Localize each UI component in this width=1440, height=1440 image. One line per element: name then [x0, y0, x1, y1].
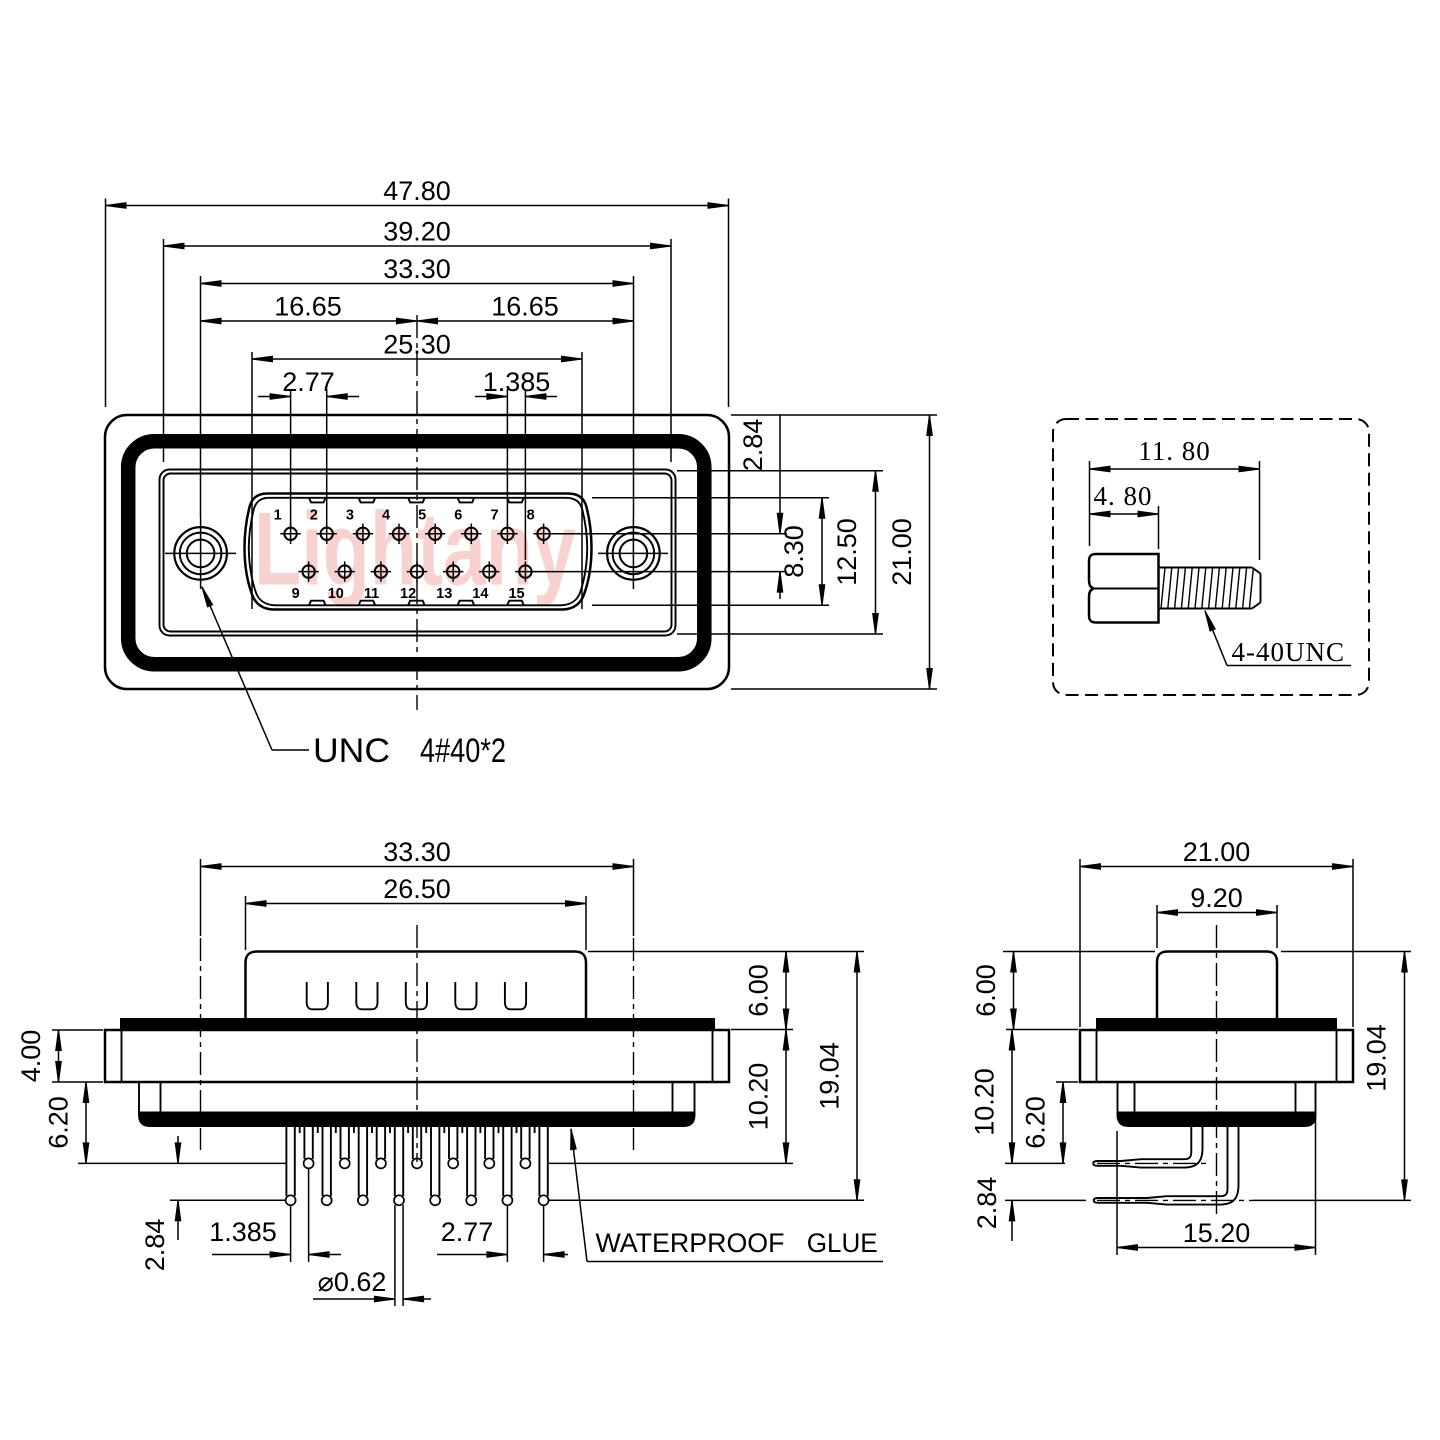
svg-text:26.50: 26.50 — [383, 874, 451, 904]
svg-text:12: 12 — [400, 586, 416, 602]
svg-text:6.00: 6.00 — [971, 964, 1001, 1017]
svg-text:15.20: 15.20 — [1183, 1218, 1251, 1248]
svg-text:⌀0.62: ⌀0.62 — [318, 1267, 387, 1297]
svg-text:4. 80: 4. 80 — [1094, 481, 1153, 511]
svg-text:1: 1 — [274, 508, 282, 524]
svg-text:2.77: 2.77 — [441, 1217, 494, 1247]
svg-text:12.50: 12.50 — [832, 518, 862, 586]
svg-text:10.20: 10.20 — [744, 1063, 774, 1131]
svg-text:33.30: 33.30 — [383, 837, 451, 867]
svg-text:UNC: UNC — [313, 732, 390, 770]
svg-text:21.00: 21.00 — [1183, 837, 1251, 867]
svg-text:6.20: 6.20 — [44, 1096, 74, 1149]
svg-text:16.65: 16.65 — [491, 292, 559, 322]
svg-text:15: 15 — [508, 586, 524, 602]
svg-text:4-40UNC: 4-40UNC — [1232, 637, 1346, 667]
svg-text:16.65: 16.65 — [274, 292, 342, 322]
svg-text:47.80: 47.80 — [383, 176, 451, 206]
svg-text:25.30: 25.30 — [383, 330, 451, 360]
svg-text:3: 3 — [346, 508, 354, 524]
svg-text:2.84: 2.84 — [140, 1219, 170, 1272]
svg-text:11. 80: 11. 80 — [1138, 436, 1211, 466]
svg-text:2.84: 2.84 — [738, 419, 768, 472]
svg-text:11: 11 — [364, 586, 379, 602]
svg-text:4: 4 — [382, 508, 390, 524]
svg-text:6.20: 6.20 — [1021, 1096, 1051, 1149]
svg-text:6: 6 — [454, 508, 462, 524]
svg-text:2: 2 — [310, 508, 318, 524]
svg-text:9: 9 — [292, 586, 300, 602]
svg-text:WATERPROOF: WATERPROOF — [596, 1228, 785, 1258]
svg-text:2.84: 2.84 — [972, 1177, 1002, 1230]
svg-text:5: 5 — [418, 508, 426, 524]
svg-text:6.00: 6.00 — [744, 964, 774, 1017]
svg-text:2.77: 2.77 — [282, 367, 335, 397]
svg-text:19.04: 19.04 — [815, 1042, 845, 1110]
svg-text:14: 14 — [472, 586, 488, 602]
svg-text:39.20: 39.20 — [383, 217, 451, 247]
svg-text:1.385: 1.385 — [209, 1217, 277, 1247]
svg-text:7: 7 — [490, 508, 498, 524]
svg-text:10: 10 — [328, 586, 344, 602]
svg-text:19.04: 19.04 — [1362, 1024, 1392, 1092]
svg-text:13: 13 — [436, 586, 452, 602]
svg-text:10.20: 10.20 — [970, 1068, 1000, 1136]
svg-text:8.30: 8.30 — [779, 525, 809, 578]
svg-text:21.00: 21.00 — [887, 518, 917, 586]
svg-text:33.30: 33.30 — [383, 254, 451, 284]
svg-text:8: 8 — [527, 508, 535, 524]
svg-text:GLUE: GLUE — [807, 1228, 878, 1258]
svg-text:4#40*2: 4#40*2 — [420, 732, 506, 770]
svg-text:4.00: 4.00 — [16, 1030, 46, 1083]
svg-text:1.385: 1.385 — [483, 367, 551, 397]
svg-text:9.20: 9.20 — [1190, 883, 1243, 913]
